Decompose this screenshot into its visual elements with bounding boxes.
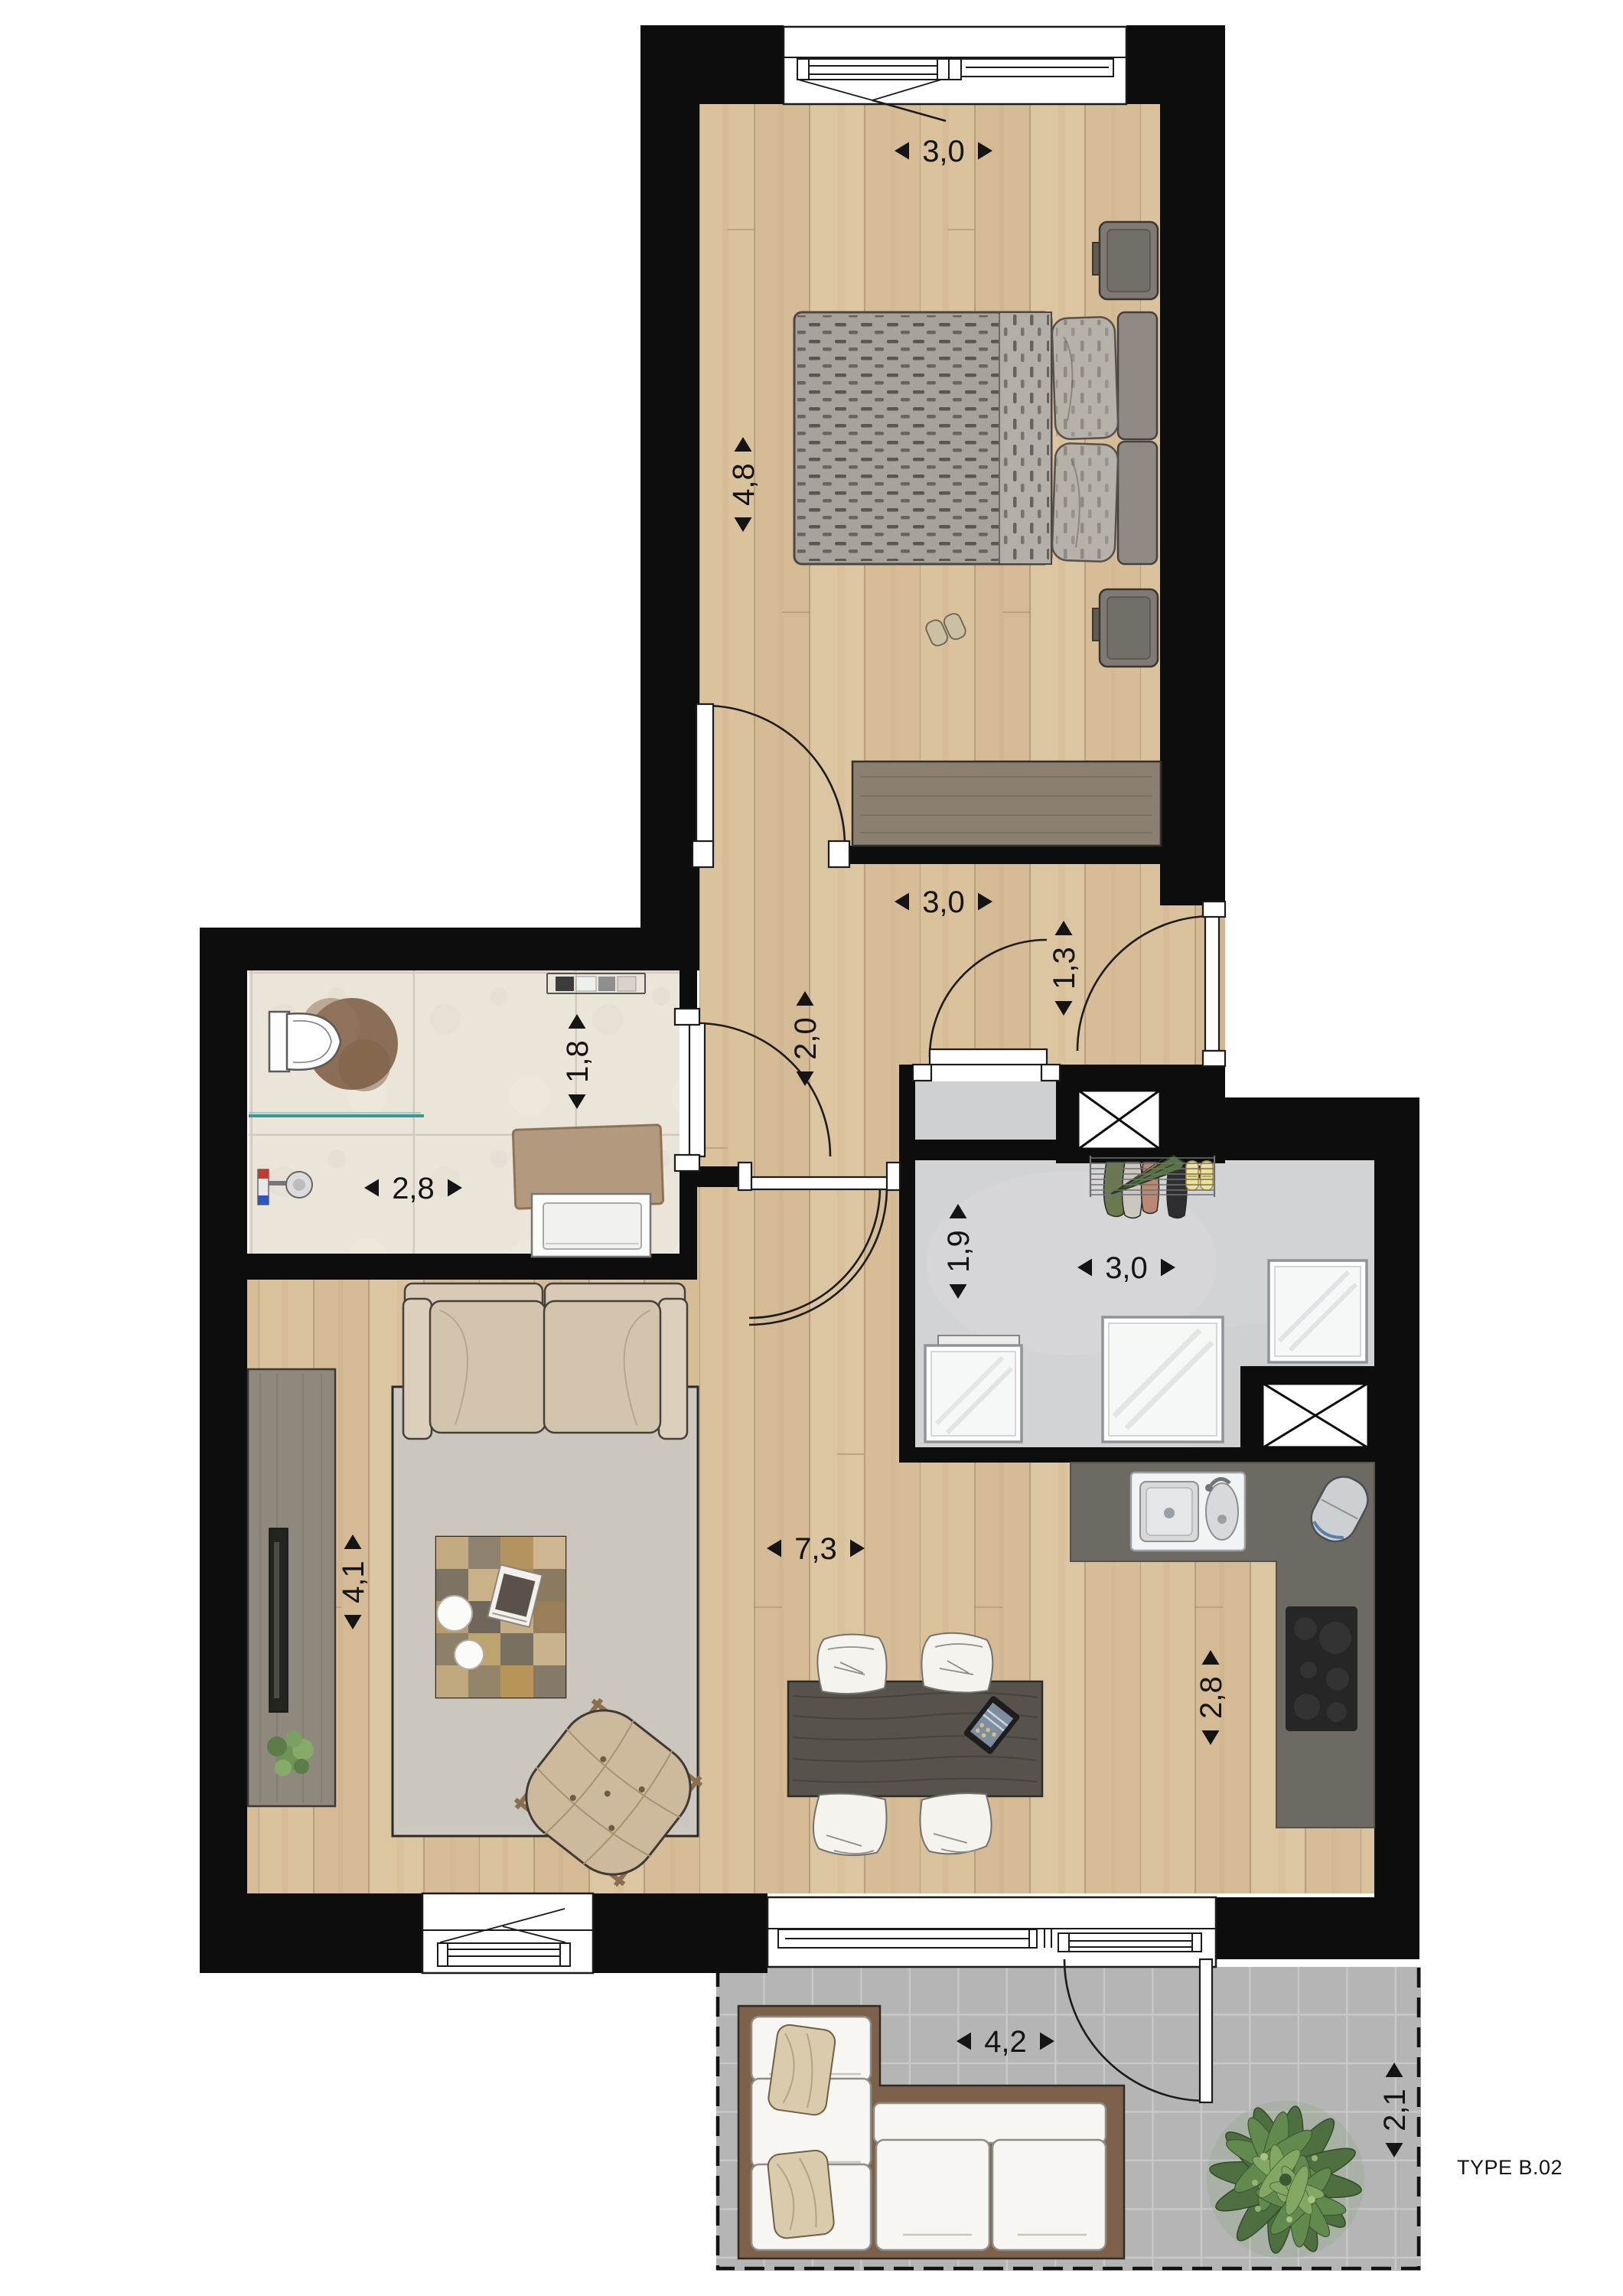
svg-text:7,3: 7,3 <box>794 1532 837 1566</box>
svg-text:1,8: 1,8 <box>561 1040 595 1083</box>
svg-text:3,0: 3,0 <box>1105 1251 1148 1285</box>
svg-text:2,1: 2,1 <box>1378 2089 1412 2131</box>
svg-text:3,0: 3,0 <box>922 885 965 919</box>
svg-text:4,8: 4,8 <box>727 463 761 506</box>
svg-text:4,2: 4,2 <box>984 2025 1027 2059</box>
svg-text:2,0: 2,0 <box>789 1017 823 1060</box>
svg-text:3,0: 3,0 <box>922 135 965 168</box>
svg-text:2,8: 2,8 <box>1194 1676 1228 1719</box>
svg-text:TYPE B.02: TYPE B.02 <box>1457 2156 1563 2179</box>
svg-text:4,1: 4,1 <box>337 1561 370 1603</box>
svg-text:1,3: 1,3 <box>1048 947 1081 990</box>
svg-text:2,8: 2,8 <box>392 1172 435 1205</box>
svg-text:1,9: 1,9 <box>942 1230 976 1273</box>
